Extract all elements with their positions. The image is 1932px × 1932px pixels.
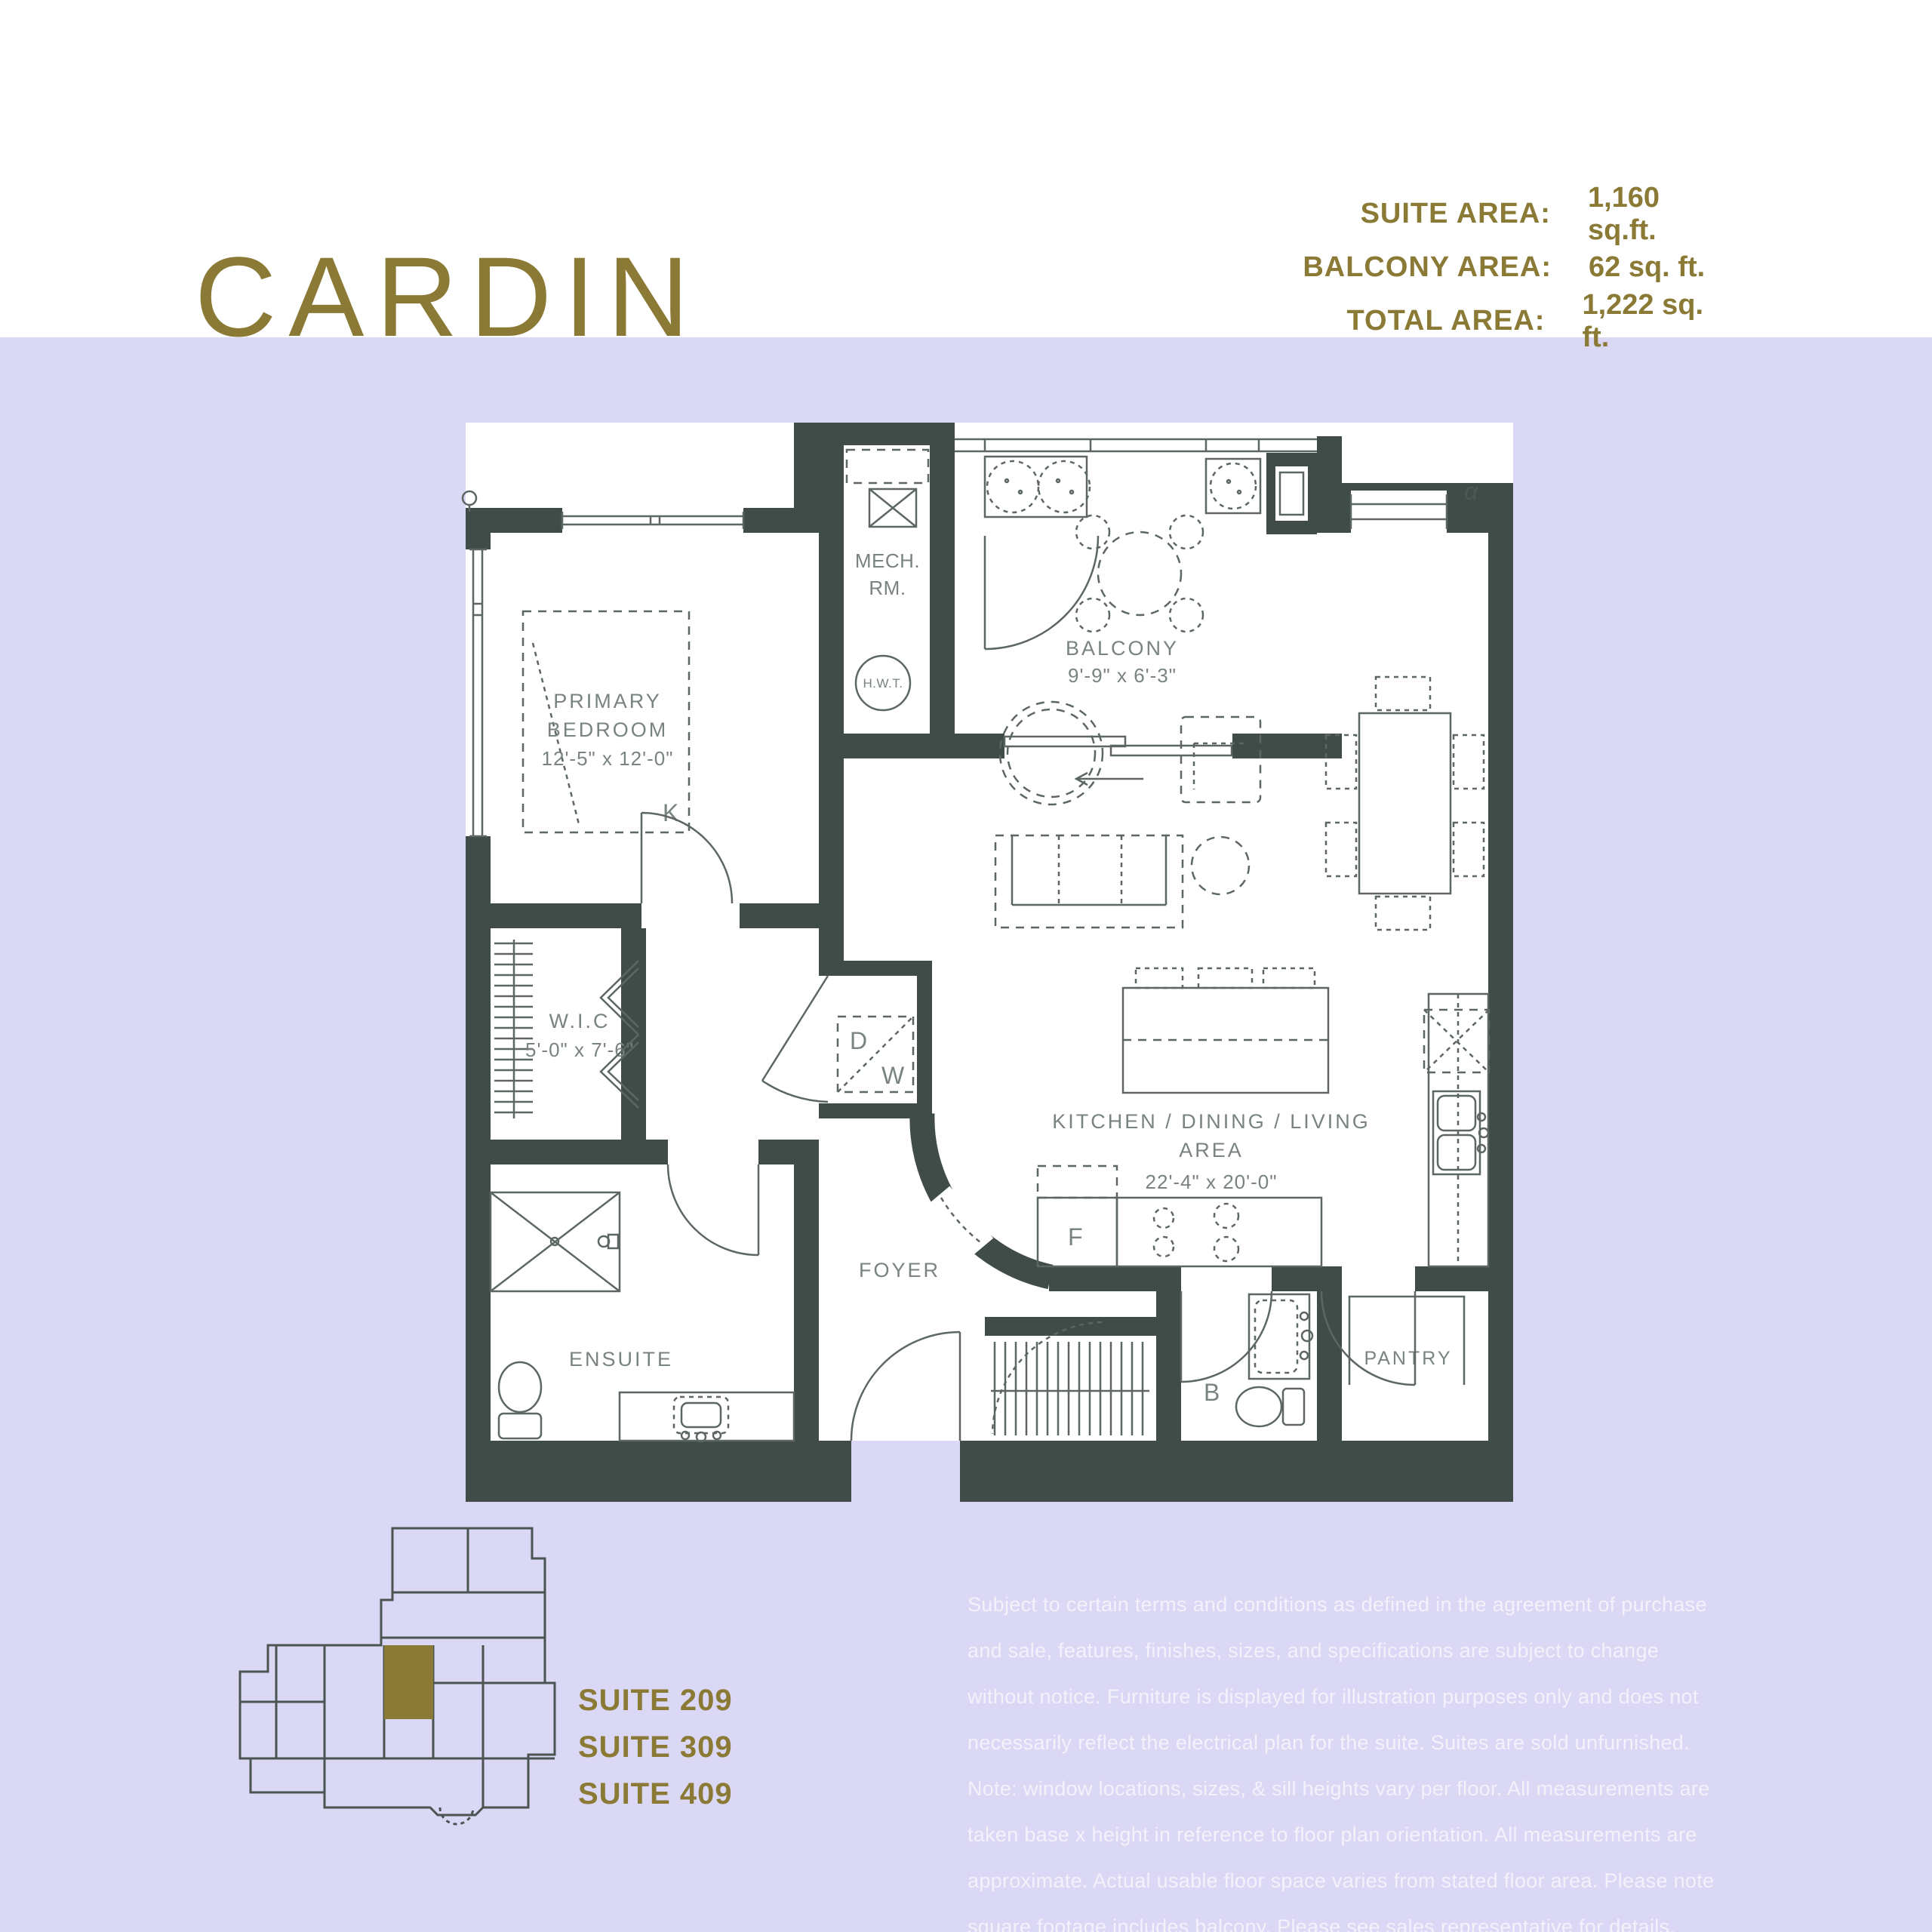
- mech-room-label-line2: RM.: [869, 577, 906, 599]
- mech-room-label-line1: MECH.: [855, 549, 920, 572]
- dryer-letter: D: [850, 1027, 868, 1054]
- kitchen-label-line1: KITCHEN / DINING / LIVING: [1052, 1110, 1371, 1133]
- suite-309: SUITE 309: [578, 1724, 733, 1770]
- suite-area-value: 1,160 sq.ft.: [1588, 182, 1736, 247]
- total-area-row: TOTAL AREA: 1,222 sq. ft.: [1162, 294, 1736, 348]
- fridge-letter: F: [1068, 1223, 1084, 1251]
- balcony-area-label: BALCONY AREA:: [1162, 251, 1552, 284]
- disclaimer-text: Subject to certain terms and conditions …: [968, 1582, 1722, 1932]
- balcony-dims: 9'-9" x 6'-3": [1068, 664, 1177, 687]
- kitchen-dims: 22'-4" x 20'-0": [1146, 1171, 1278, 1193]
- keyplan: [226, 1517, 566, 1834]
- suite-209: SUITE 209: [578, 1677, 733, 1724]
- wic-label: W.I.C: [549, 1010, 611, 1032]
- area-summary: SUITE AREA: 1,160 sq.ft. BALCONY AREA: 6…: [1162, 187, 1736, 348]
- suite-floorplan: BALCONY 9'-9" x 6'-3" MECH. RM. H.W.T.: [453, 411, 1517, 1506]
- suite-409: SUITE 409: [578, 1770, 733, 1817]
- floorplan-brochure-page: CARDIN SUITE AREA: 1,160 sq.ft. BALCONY …: [0, 0, 1932, 1932]
- total-area-label: TOTAL AREA:: [1162, 305, 1545, 337]
- entry-recess: [851, 1441, 960, 1502]
- pantry-label: PANTRY: [1364, 1348, 1452, 1369]
- bedroom-label-line2: BEDROOM: [547, 718, 669, 741]
- bedroom-label-line1: PRIMARY: [553, 690, 662, 712]
- balcony-area-row: BALCONY AREA: 62 sq. ft.: [1162, 241, 1736, 294]
- hwt-label: H.W.T.: [863, 676, 903, 691]
- page-title: CARDIN: [195, 240, 701, 353]
- bed-size-letter: K: [663, 799, 679, 826]
- washer-letter: W: [881, 1062, 905, 1089]
- foyer-label: FOYER: [859, 1259, 940, 1281]
- bedroom-west-window: [466, 549, 491, 836]
- balcony-column: [1266, 453, 1317, 534]
- total-area-value: 1,222 sq. ft.: [1582, 289, 1736, 354]
- kitchen-label-line2: AREA: [1179, 1139, 1244, 1161]
- suite-area-label: SUITE AREA:: [1162, 198, 1551, 230]
- balcony-label: BALCONY: [1066, 637, 1179, 660]
- kitchen-north-window: [1351, 491, 1447, 533]
- bedroom-dims: 12'-5" x 12'-0": [542, 747, 674, 770]
- bedroom-north-window: [562, 508, 743, 533]
- orientation-mark: α: [1464, 478, 1478, 505]
- suite-list: SUITE 209 SUITE 309 SUITE 409: [578, 1677, 733, 1817]
- suite-area-row: SUITE AREA: 1,160 sq.ft.: [1162, 187, 1736, 241]
- keyplan-highlighted-suite: [384, 1645, 433, 1719]
- wic-dims: 5'-0" x 7'-6": [525, 1038, 634, 1061]
- ensuite-label: ENSUITE: [569, 1348, 673, 1371]
- bath-label: B: [1204, 1379, 1220, 1406]
- balcony-area-value: 62 sq. ft.: [1589, 251, 1705, 284]
